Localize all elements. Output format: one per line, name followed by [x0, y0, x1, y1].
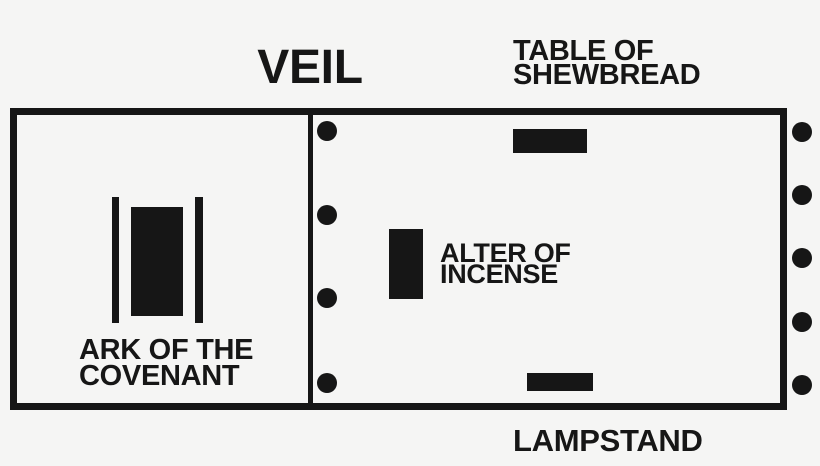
veil-pillar-dot-4 — [317, 373, 337, 393]
right-wall-pillar-dot-5 — [792, 375, 812, 395]
veil-label: VEIL — [257, 44, 363, 92]
table-of-shewbread-label: TABLE OF SHEWBREAD — [513, 39, 700, 87]
ark-left-pole — [112, 197, 119, 323]
ark-of-the-covenant-shape — [131, 207, 183, 316]
veil-pillar-dot-1 — [317, 121, 337, 141]
lampstand-label: LAMPSTAND — [513, 425, 703, 456]
veil-pillar-dot-3 — [317, 288, 337, 308]
right-wall-pillar-dot-2 — [792, 185, 812, 205]
ark-of-the-covenant-label: ARK OF THE COVENANT — [79, 337, 253, 389]
table-of-shewbread-shape — [513, 129, 587, 153]
tabernacle-diagram: VEIL TABLE OF SHEWBREAD LAMPSTAND ARK OF… — [0, 0, 820, 466]
right-wall-pillar-dot-4 — [792, 312, 812, 332]
veil-divider-line — [308, 108, 313, 410]
right-wall-pillar-dot-3 — [792, 248, 812, 268]
ark-right-pole — [195, 197, 203, 323]
ark-of-the-covenant-label-line2: COVENANT — [79, 363, 253, 389]
alter-of-incense-shape — [389, 229, 423, 299]
alter-of-incense-label-line2: INCENSE — [440, 264, 571, 285]
right-wall-pillar-dot-1 — [792, 122, 812, 142]
lampstand-shape — [527, 373, 593, 391]
table-of-shewbread-label-line2: SHEWBREAD — [513, 63, 700, 87]
veil-pillar-dot-2 — [317, 205, 337, 225]
alter-of-incense-label: ALTER OF INCENSE — [440, 243, 571, 285]
